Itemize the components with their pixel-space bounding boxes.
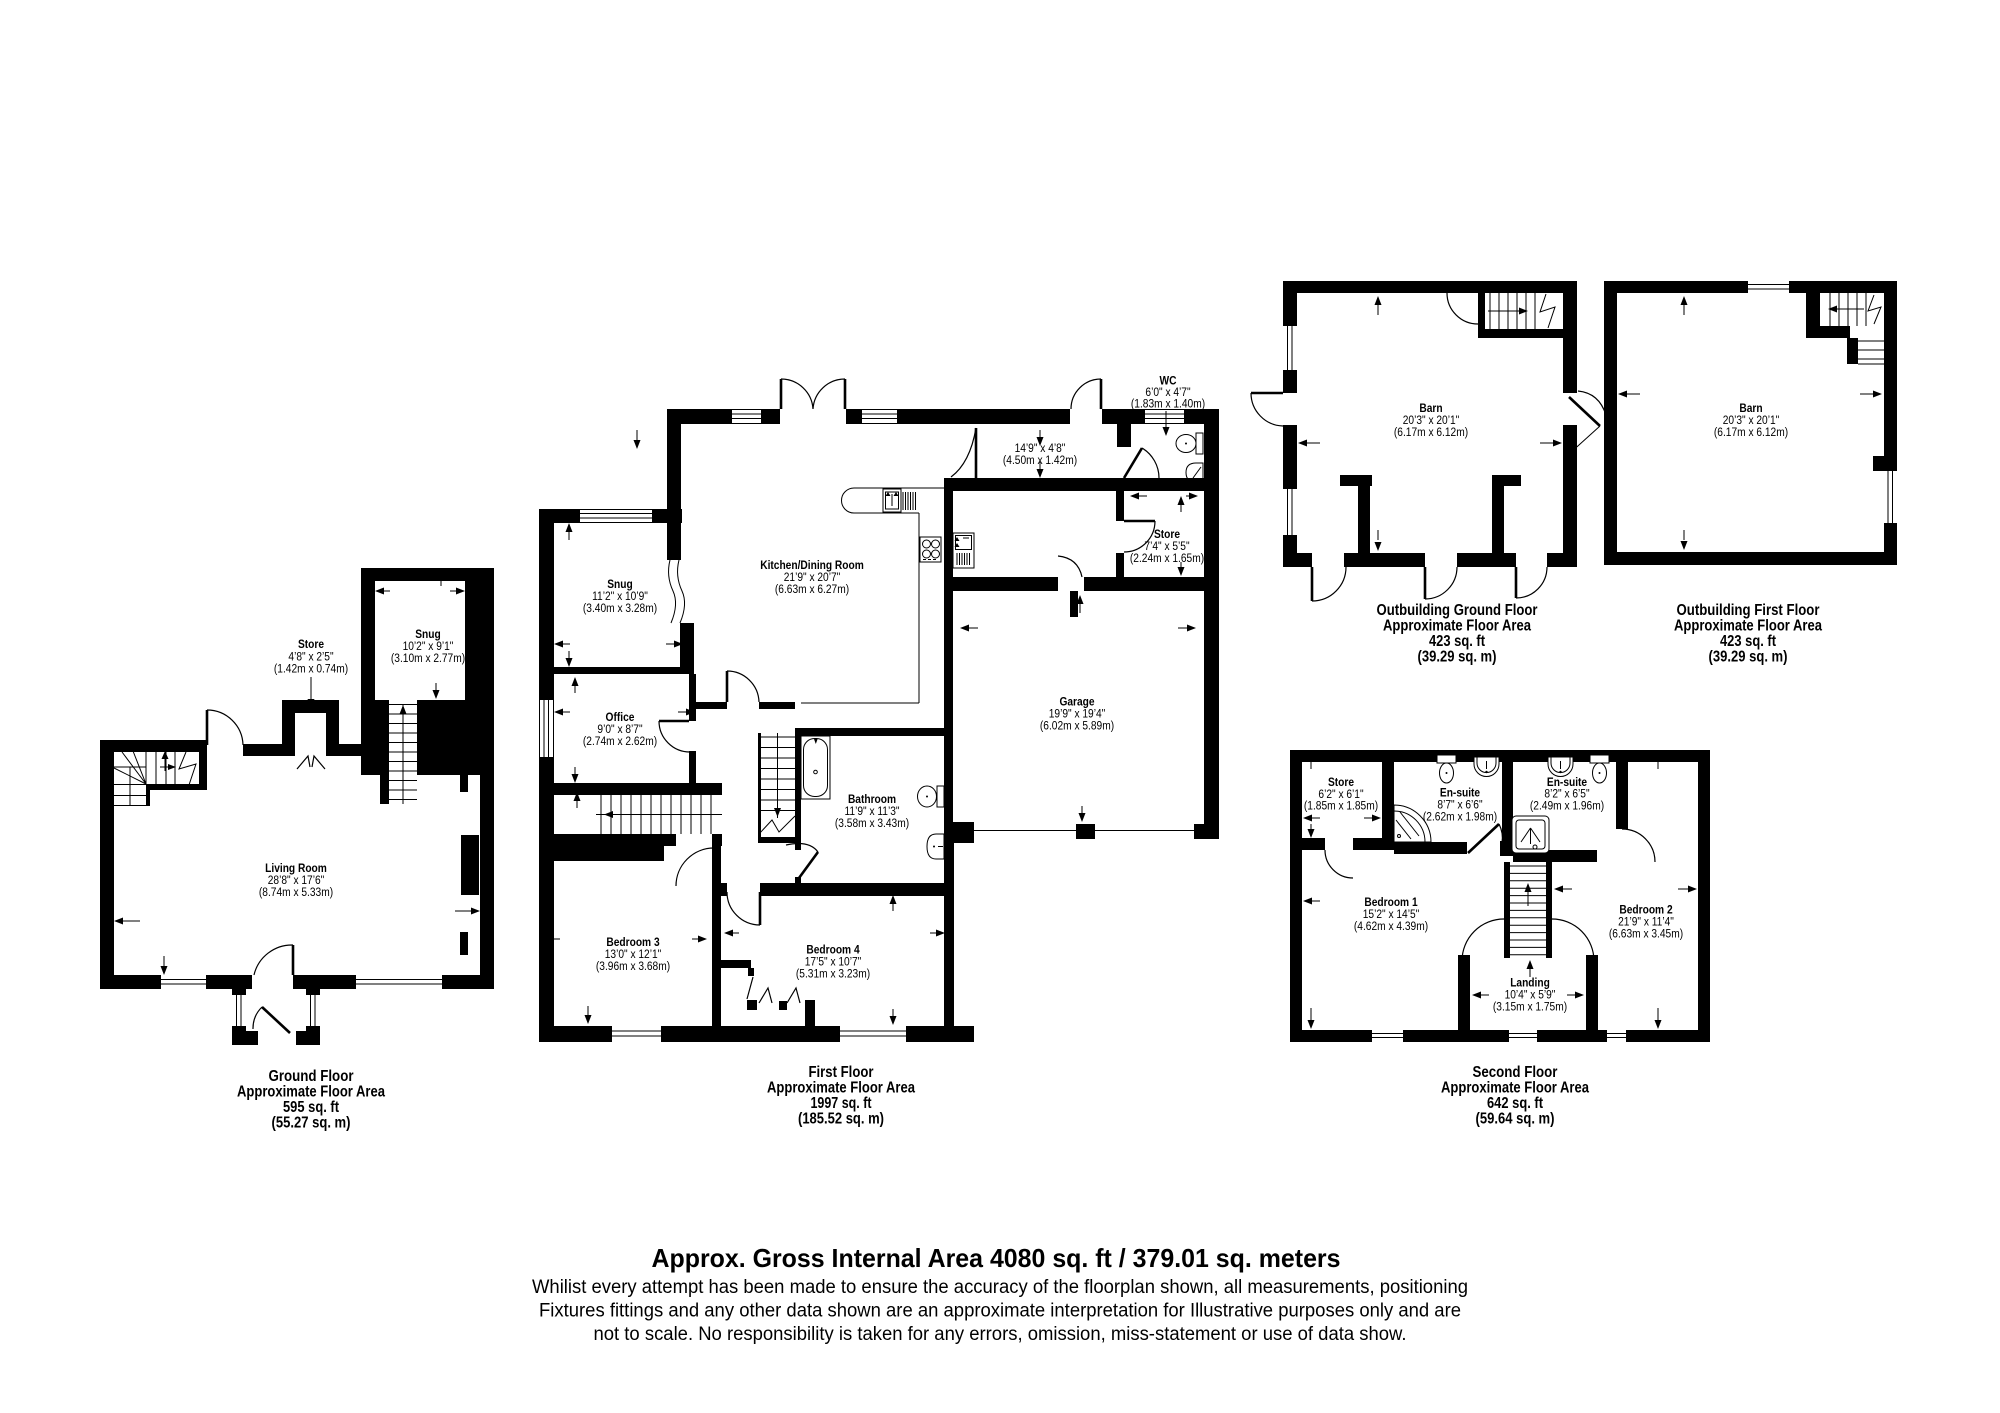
svg-text:Barn: Barn (1739, 402, 1762, 415)
svg-text:Ground Floor: Ground Floor (269, 1068, 354, 1085)
svg-text:(4.50m x 1.42m): (4.50m x 1.42m) (1003, 454, 1077, 467)
svg-text:(55.27 sq. m): (55.27 sq. m) (272, 1115, 351, 1132)
svg-text:4’8" x 2’5": 4’8" x 2’5" (288, 651, 333, 664)
svg-text:(39.29 sq. m): (39.29 sq. m) (1709, 649, 1788, 666)
svg-text:(59.64 sq. m): (59.64 sq. m) (1476, 1111, 1555, 1128)
svg-text:10’4" x 5’9": 10’4" x 5’9" (1505, 989, 1556, 1002)
svg-text:(6.63m x 3.45m): (6.63m x 3.45m) (1609, 928, 1683, 941)
svg-text:19’9" x 19’4": 19’9" x 19’4" (1049, 708, 1106, 721)
svg-text:Fixtures fittings and any othe: Fixtures fittings and any other data sho… (539, 1301, 1461, 1322)
svg-text:Barn: Barn (1419, 402, 1442, 415)
svg-text:(1.85m x 1.85m): (1.85m x 1.85m) (1304, 800, 1378, 813)
svg-text:Outbuilding Ground Floor: Outbuilding Ground Floor (1377, 602, 1538, 619)
svg-text:Whilist every attempt has been: Whilist every attempt has been made to e… (532, 1277, 1468, 1298)
svg-text:Office: Office (606, 711, 635, 724)
svg-text:8’7" x 6’6": 8’7" x 6’6" (1437, 799, 1482, 812)
svg-text:(3.96m x 3.68m): (3.96m x 3.68m) (596, 960, 670, 973)
svg-text:(3.40m x 3.28m): (3.40m x 3.28m) (583, 602, 657, 615)
svg-text:Bedroom 4: Bedroom 4 (806, 944, 860, 957)
svg-text:(3.58m x 3.43m): (3.58m x 3.43m) (835, 817, 909, 830)
svg-text:Approximate Floor Area: Approximate Floor Area (237, 1084, 385, 1101)
svg-text:28’8" x 17’6": 28’8" x 17’6" (268, 874, 325, 887)
svg-text:(4.62m x 4.39m): (4.62m x 4.39m) (1354, 920, 1428, 933)
svg-text:(6.02m x 5.89m): (6.02m x 5.89m) (1040, 720, 1114, 733)
svg-text:Snug: Snug (415, 628, 441, 641)
svg-text:Approximate Floor Area: Approximate Floor Area (1383, 618, 1531, 635)
svg-text:Second Floor: Second Floor (1473, 1064, 1558, 1081)
svg-text:11’2" x 10’9": 11’2" x 10’9" (592, 590, 648, 603)
svg-text:(3.15m x 1.75m): (3.15m x 1.75m) (1493, 1001, 1567, 1014)
svg-text:First Floor: First Floor (809, 1064, 874, 1081)
svg-text:(3.10m x 2.77m): (3.10m x 2.77m) (391, 652, 465, 665)
svg-text:Approx. Gross Internal Area 40: Approx. Gross Internal Area 4080 sq. ft … (652, 1243, 1341, 1273)
svg-text:(2.74m x 2.62m): (2.74m x 2.62m) (583, 735, 657, 748)
svg-text:11’9" x 11’3": 11’9" x 11’3" (844, 805, 899, 818)
svg-text:(1.83m x 1.40m): (1.83m x 1.40m) (1131, 398, 1205, 411)
svg-text:(8.74m x 5.33m): (8.74m x 5.33m) (259, 886, 333, 899)
svg-text:Store: Store (298, 638, 324, 651)
svg-text:9’0" x 8’7": 9’0" x 8’7" (597, 723, 642, 736)
svg-text:(2.62m x 1.98m): (2.62m x 1.98m) (1423, 811, 1497, 824)
svg-text:(2.24m x 1.65m): (2.24m x 1.65m) (1130, 552, 1204, 565)
svg-text:10’2" x 9’1": 10’2" x 9’1" (403, 640, 454, 653)
svg-text:Bedroom 3: Bedroom 3 (606, 936, 659, 949)
svg-text:Bedroom 2: Bedroom 2 (1619, 904, 1672, 917)
svg-text:7’4" x 5’5": 7’4" x 5’5" (1144, 540, 1189, 553)
svg-text:Approximate Floor Area: Approximate Floor Area (767, 1080, 915, 1097)
svg-text:15’2" x 14’5": 15’2" x 14’5" (1363, 908, 1420, 921)
svg-text:(185.52 sq. m): (185.52 sq. m) (798, 1111, 884, 1128)
svg-text:423 sq. ft: 423 sq. ft (1720, 633, 1776, 650)
svg-text:not to scale. No responsibilit: not to scale. No responsibility is taken… (594, 1324, 1407, 1345)
svg-text:1997 sq. ft: 1997 sq. ft (811, 1095, 872, 1112)
svg-text:(6.17m x 6.12m): (6.17m x 6.12m) (1394, 426, 1468, 439)
svg-text:14’9" x 4’8": 14’9" x 4’8" (1015, 442, 1066, 455)
svg-text:17’5" x 10’7": 17’5" x 10’7" (805, 956, 862, 969)
svg-text:20’3" x 20’1": 20’3" x 20’1" (1723, 414, 1780, 427)
svg-text:595 sq. ft: 595 sq. ft (283, 1099, 339, 1116)
svg-text:(2.49m x 1.96m): (2.49m x 1.96m) (1530, 800, 1604, 813)
svg-text:Kitchen/Dining Room: Kitchen/Dining Room (760, 559, 864, 572)
svg-text:(1.42m x 0.74m): (1.42m x 0.74m) (274, 663, 348, 676)
svg-text:Store: Store (1328, 776, 1354, 789)
svg-text:Snug: Snug (607, 578, 633, 591)
svg-text:Approximate Floor Area: Approximate Floor Area (1441, 1080, 1589, 1097)
svg-text:Outbuilding First Floor: Outbuilding First Floor (1677, 602, 1820, 619)
svg-text:(6.63m x 6.27m): (6.63m x 6.27m) (775, 583, 849, 596)
svg-text:(5.31m x 3.23m): (5.31m x 3.23m) (796, 968, 870, 981)
svg-text:Approximate Floor Area: Approximate Floor Area (1674, 618, 1822, 635)
svg-text:En-suite: En-suite (1440, 787, 1480, 800)
svg-text:Bathroom: Bathroom (848, 793, 896, 806)
svg-text:642 sq. ft: 642 sq. ft (1487, 1095, 1543, 1112)
svg-text:(39.29 sq. m): (39.29 sq. m) (1418, 649, 1497, 666)
svg-text:Store: Store (1154, 528, 1180, 541)
svg-text:8’2" x 6’5": 8’2" x 6’5" (1544, 788, 1589, 801)
svg-text:Bedroom 1: Bedroom 1 (1364, 896, 1417, 909)
svg-text:Landing: Landing (1510, 977, 1550, 990)
svg-text:21’9" x 11’4": 21’9" x 11’4" (1618, 916, 1674, 929)
svg-text:Living Room: Living Room (265, 862, 327, 875)
svg-text:20’3" x 20’1": 20’3" x 20’1" (1403, 414, 1460, 427)
svg-text:13’0" x 12’1": 13’0" x 12’1" (605, 948, 662, 961)
svg-text:(6.17m x 6.12m): (6.17m x 6.12m) (1714, 426, 1788, 439)
svg-text:423 sq. ft: 423 sq. ft (1429, 633, 1485, 650)
svg-text:21’9" x 20’7": 21’9" x 20’7" (784, 571, 841, 584)
svg-text:Garage: Garage (1059, 696, 1094, 709)
